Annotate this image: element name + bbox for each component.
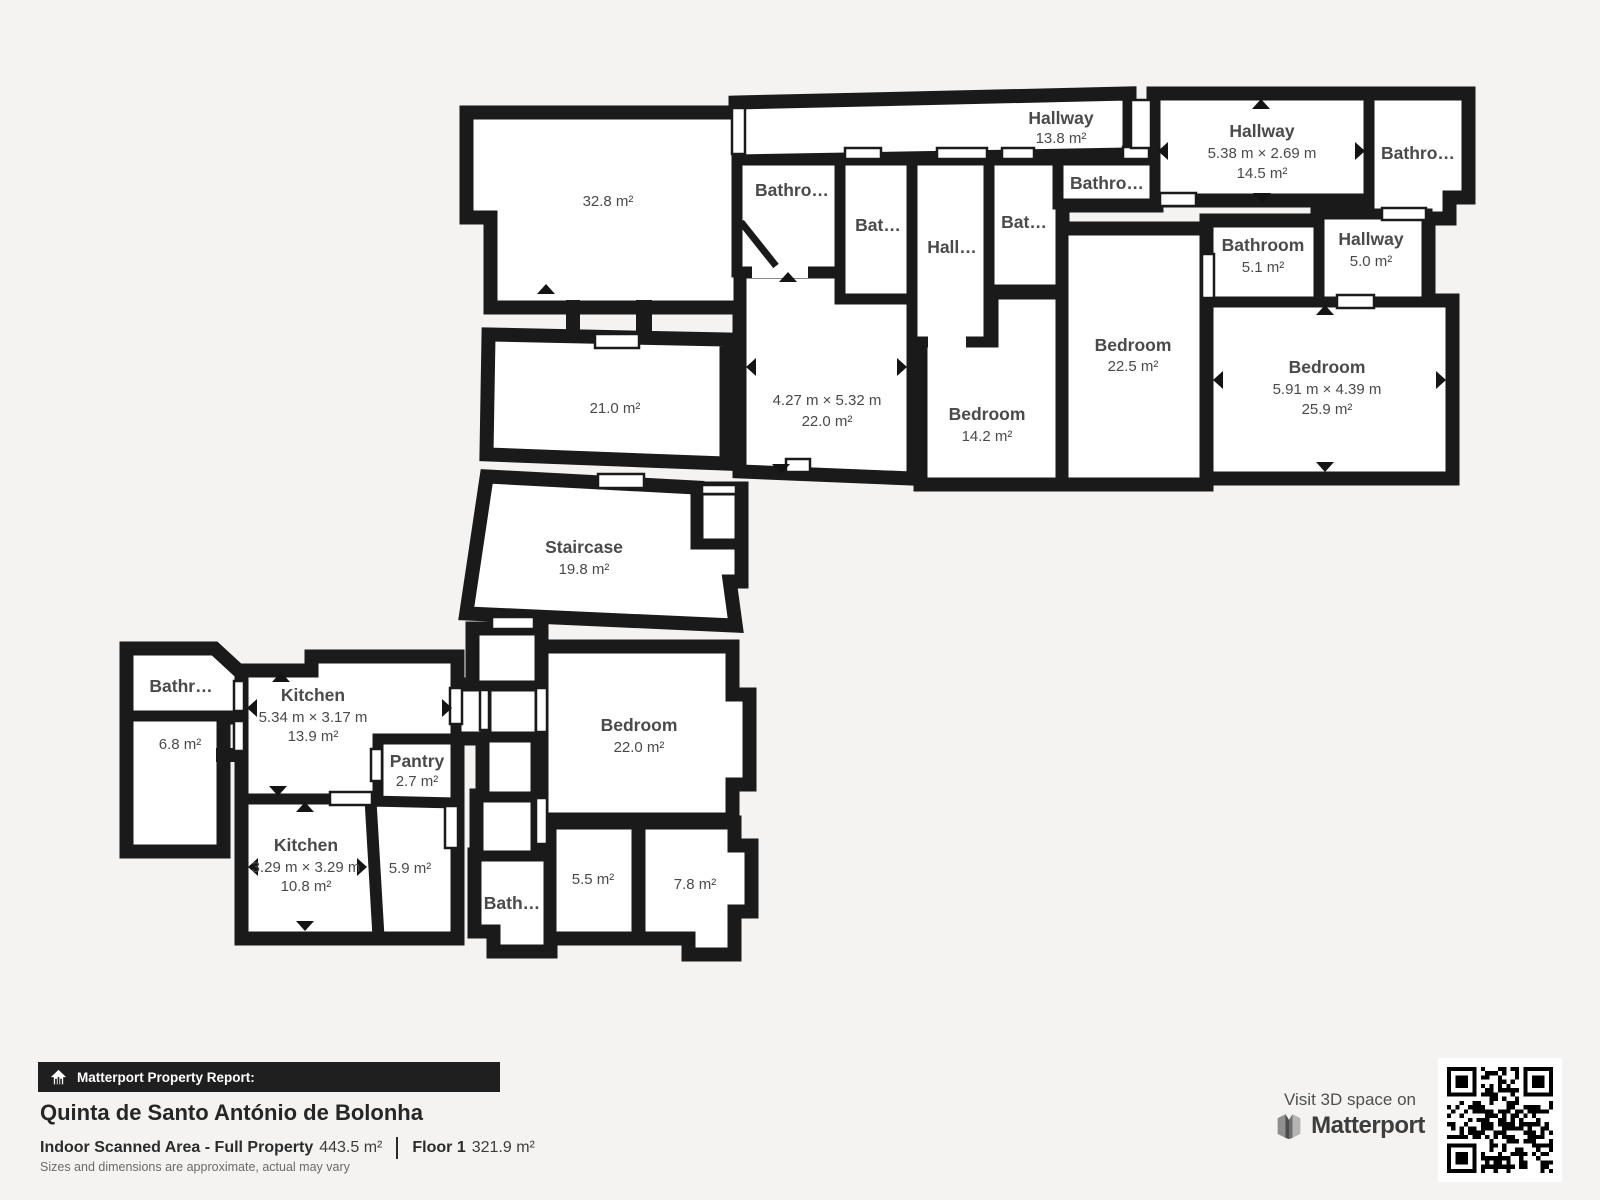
house-report-icon — [50, 1069, 67, 1086]
bedroom-25-9-name: Bedroom — [1289, 357, 1366, 377]
bathroom-c-name: Bat… — [1001, 212, 1047, 232]
qr-code-pattern — [1447, 1067, 1553, 1173]
bathroom-left-name: Bathr… — [149, 676, 212, 696]
bathroom-5-1-name: Bathroom — [1222, 235, 1305, 255]
bathroom-5-1-area: 5.1 m² — [1242, 259, 1285, 276]
staircase-name: Staircase — [545, 537, 623, 557]
hallway-5-0-area: 5.0 m² — [1350, 253, 1393, 270]
bedroom-22-0b-name: Bedroom — [601, 715, 678, 735]
qr-code — [1438, 1058, 1562, 1182]
room-22-0-dims: 4.27 m × 5.32 m — [773, 392, 882, 409]
kitchen-13-9-area: 13.9 m² — [288, 728, 339, 745]
bedroom-22-0b-area: 22.0 m² — [614, 739, 665, 756]
hallway-14-5-name: Hallway — [1229, 121, 1294, 141]
bedroom-22-5-area: 22.5 m² — [1108, 358, 1159, 375]
scanned-area-stats: Indoor Scanned Area - Full Property 443.… — [40, 1136, 535, 1160]
property-name: Quinta de Santo António de Bolonha — [40, 1100, 423, 1126]
disclaimer-text: Sizes and dimensions are approximate, ac… — [40, 1160, 350, 1174]
visit-3d-text: Visit 3D space on — [1250, 1090, 1450, 1110]
bathroom-bottom-name: Bath… — [484, 893, 540, 913]
kitchen-10-8-dims: 3.29 m × 3.29 m — [252, 859, 361, 876]
floor-label: Floor 1 — [412, 1139, 465, 1157]
floor-value: 321.9 m² — [472, 1139, 535, 1157]
matterport-m-icon — [1275, 1112, 1303, 1140]
matterport-floorplan-report: 32.8 m² 21.0 m² Staircase 19.8 m² Hallwa… — [0, 0, 1600, 1200]
area-label: Indoor Scanned Area - Full Property — [40, 1139, 313, 1157]
hallway-5-0-name: Hallway — [1338, 229, 1403, 249]
bathroom-d-name: Bathro… — [1070, 173, 1144, 193]
bathroom-a-name: Bathro… — [755, 180, 829, 200]
area-value: 443.5 m² — [319, 1139, 382, 1157]
kitchen-10-8-name: Kitchen — [274, 835, 338, 855]
kitchen-13-9-dims: 5.34 m × 3.17 m — [259, 709, 368, 726]
room-5-5-area: 5.5 m² — [572, 871, 615, 888]
floor-plan: 32.8 m² 21.0 m² Staircase 19.8 m² Hallwa… — [0, 0, 1600, 1050]
bedroom-25-9-area: 25.9 m² — [1302, 401, 1353, 418]
room-22-0-area: 22.0 m² — [802, 413, 853, 430]
room-6-8-area: 6.8 m² — [159, 736, 202, 753]
kitchen-10-8-area: 10.8 m² — [281, 878, 332, 895]
bedroom-14-2-area: 14.2 m² — [962, 428, 1013, 445]
hallway-14-5-dims: 5.38 m × 2.69 m — [1208, 145, 1317, 162]
hallway-13-8-name: Hallway — [1028, 108, 1093, 128]
banner-label: Matterport Property Report: — [77, 1070, 255, 1085]
matterport-logo: Matterport — [1250, 1112, 1450, 1140]
pantry-name: Pantry — [390, 751, 445, 771]
hall-small-name: Hall… — [927, 237, 977, 257]
brand-name: Matterport — [1311, 1112, 1425, 1140]
interior-walls — [128, 95, 1467, 953]
pantry-area: 2.7 m² — [396, 773, 439, 790]
bedroom-22-5-name: Bedroom — [1095, 335, 1172, 355]
room-32-8-area: 32.8 m² — [583, 193, 634, 210]
bedroom-25-9-dims: 5.91 m × 4.39 m — [1273, 381, 1382, 398]
kitchen-13-9-name: Kitchen — [281, 685, 345, 705]
bedroom-14-2-name: Bedroom — [949, 404, 1026, 424]
hallway-14-5-area: 14.5 m² — [1237, 165, 1288, 182]
room-21-0-area: 21.0 m² — [590, 400, 641, 417]
room-7-8-area: 7.8 m² — [674, 876, 717, 893]
bathroom-top-right-name: Bathro… — [1381, 143, 1455, 163]
staircase-area: 19.8 m² — [559, 561, 610, 578]
report-banner: Matterport Property Report: — [38, 1062, 500, 1092]
room-5-9-area: 5.9 m² — [389, 860, 432, 877]
hallway-13-8-area: 13.8 m² — [1036, 130, 1087, 147]
bathroom-b-name: Bat… — [855, 215, 901, 235]
stats-divider — [396, 1137, 398, 1159]
